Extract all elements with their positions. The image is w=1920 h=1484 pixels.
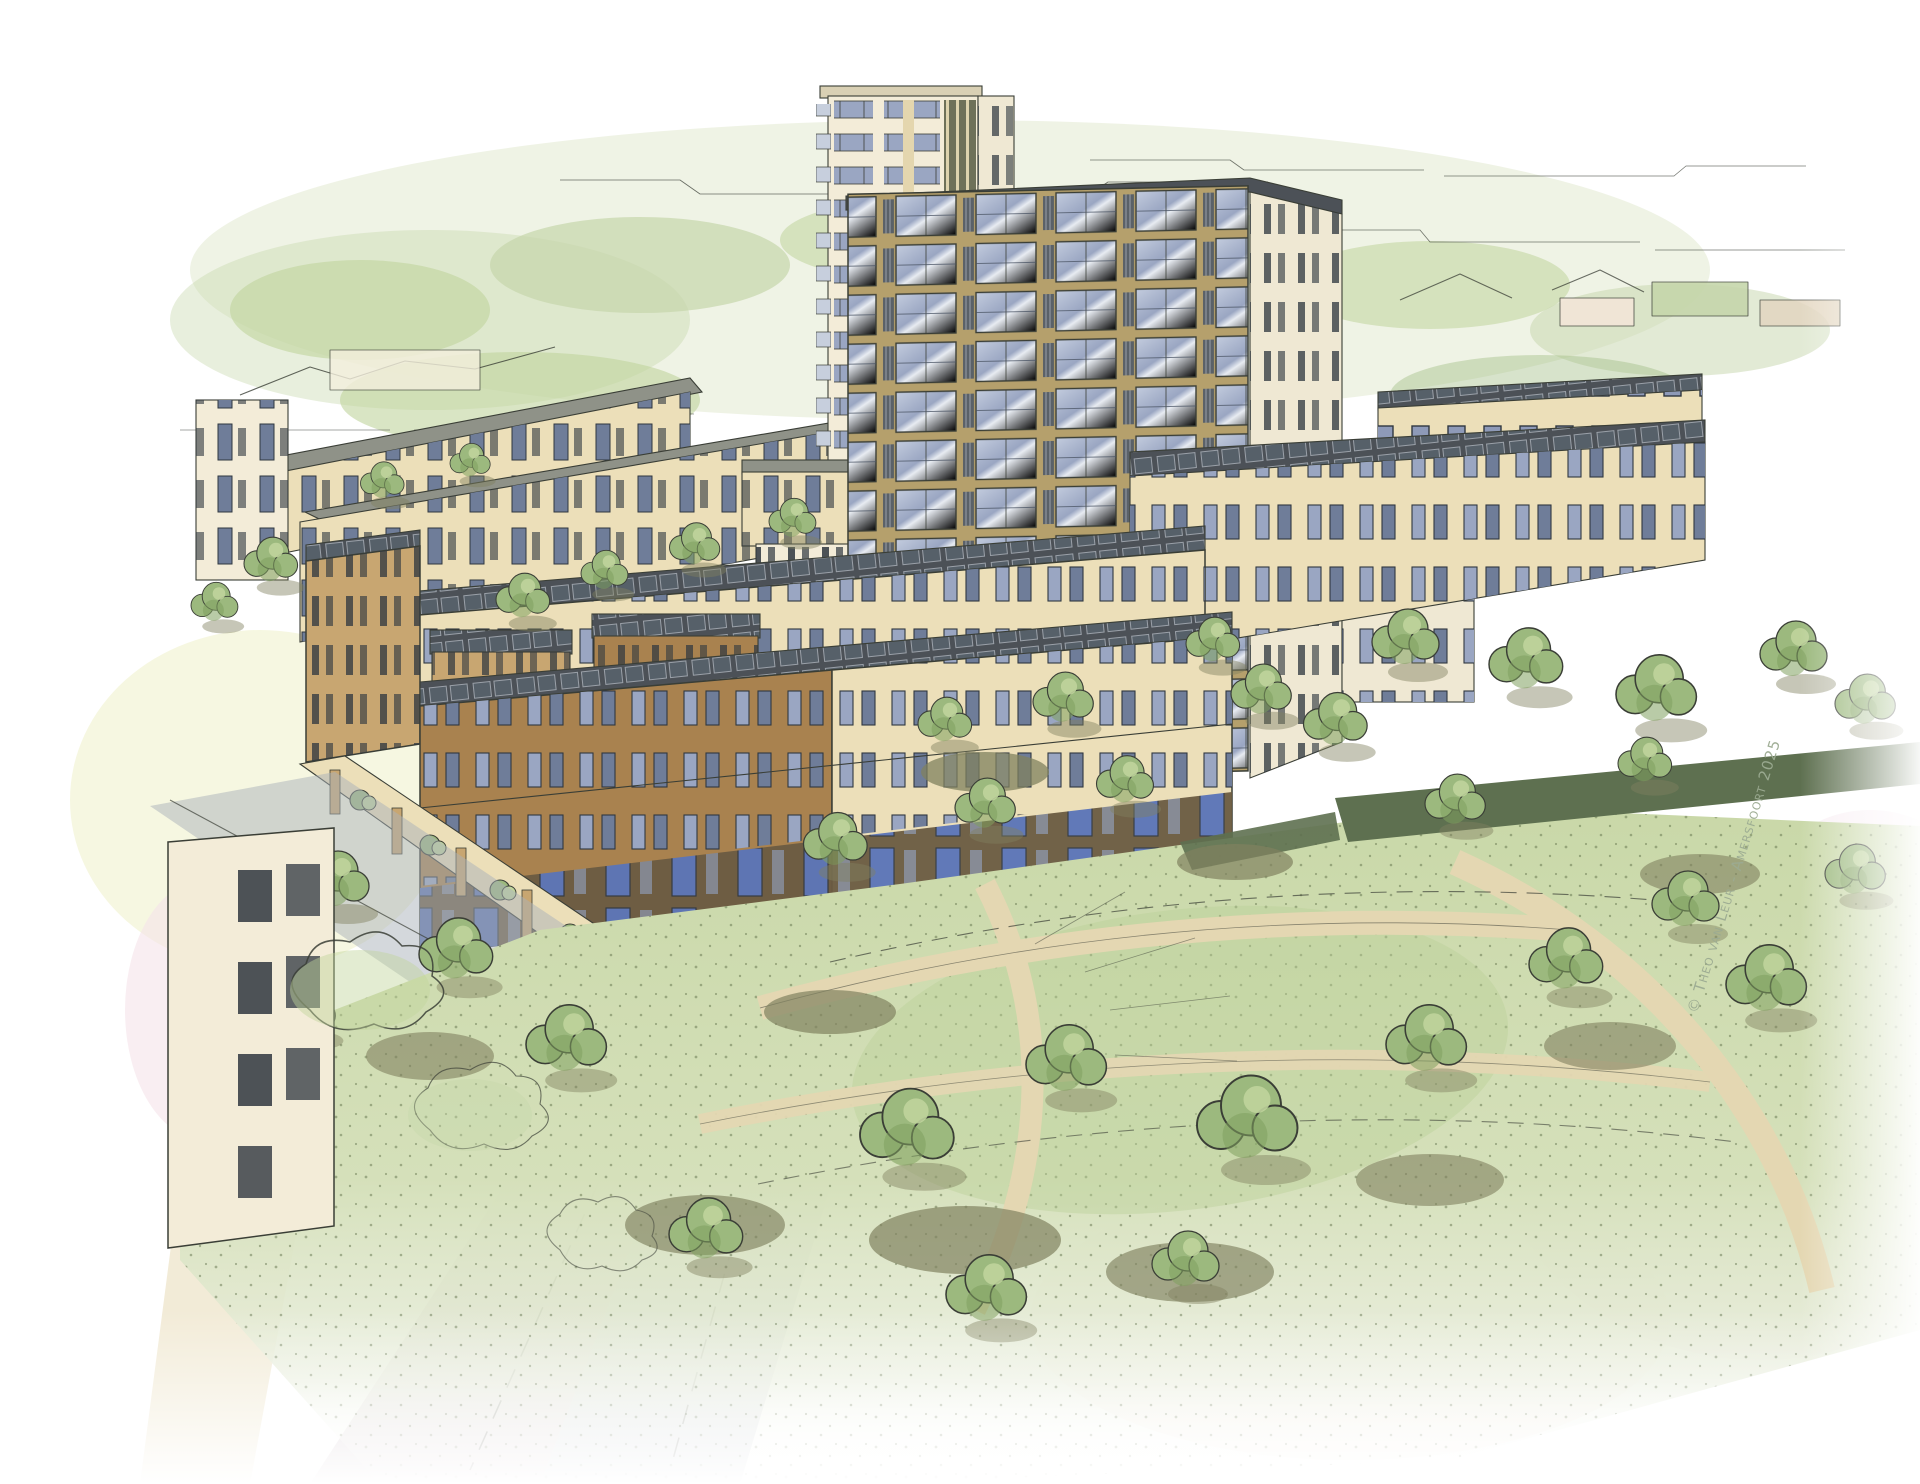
right-fade: [1800, 0, 1920, 1484]
tree-shadow: [366, 1032, 494, 1080]
mews-solar-roof: [592, 614, 760, 638]
distant-building: [1652, 282, 1748, 316]
distant-building: [330, 350, 480, 390]
illustration-svg: © Theo van Leur - Amersfoort 2025: [0, 0, 1920, 1484]
corner-building: [168, 828, 334, 1248]
architectural-aerial-illustration: © Theo van Leur - Amersfoort 2025: [0, 0, 1920, 1484]
tree-mass: [490, 217, 790, 313]
mews-solar-roof: [430, 630, 572, 654]
tree-shadow: [764, 990, 896, 1034]
tree-shadow: [869, 1206, 1061, 1274]
bush-wash: [408, 1079, 532, 1151]
tree-shadow: [1544, 1022, 1676, 1070]
bottom-fade: [0, 1310, 1920, 1484]
bush-wash: [290, 950, 430, 1030]
corner-house-windows: [306, 546, 420, 762]
tree-mass: [230, 260, 490, 360]
tree-shadow: [1177, 844, 1293, 880]
distant-building: [1560, 298, 1634, 326]
tree-shadow: [1356, 1154, 1504, 1206]
